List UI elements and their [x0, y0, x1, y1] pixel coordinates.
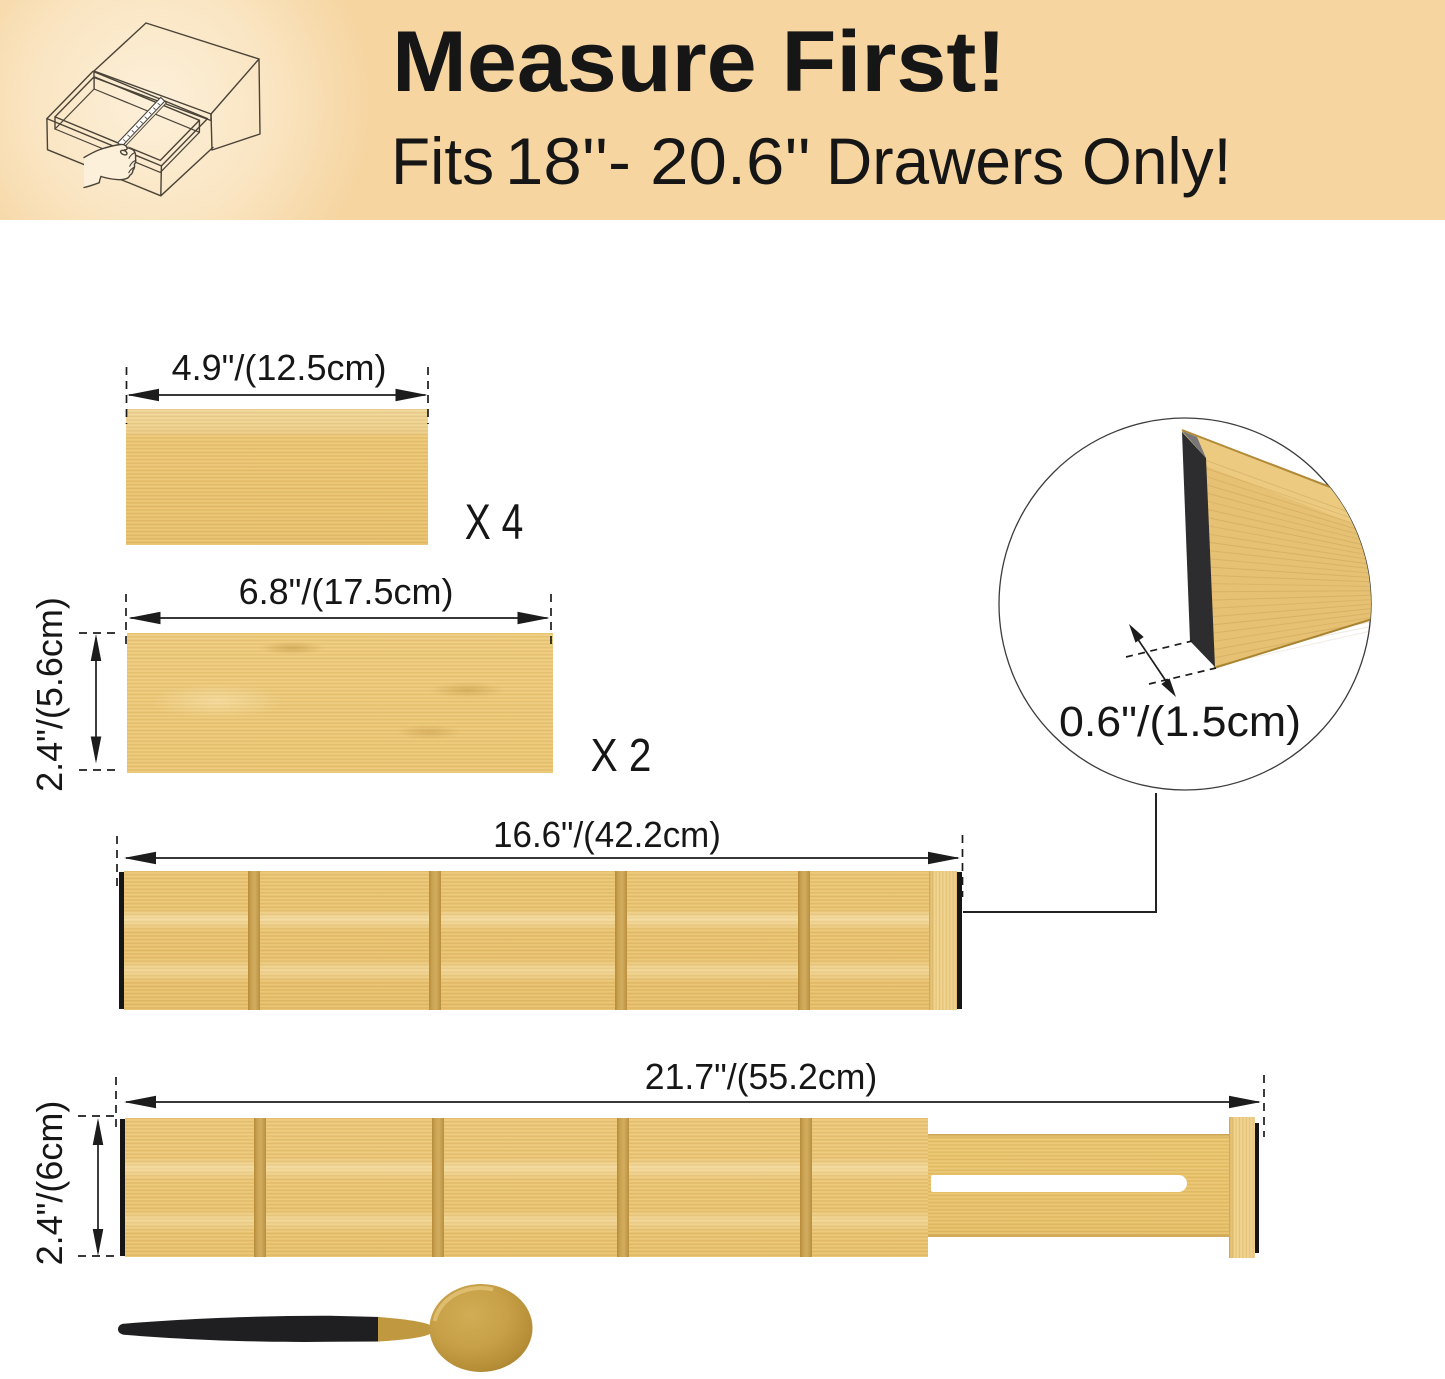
- svg-text:Drawers Only!: Drawers Only!: [826, 124, 1231, 198]
- svg-text:Measure First!: Measure First!: [392, 13, 1006, 110]
- svg-text:Fits: Fits: [391, 124, 494, 198]
- svg-text:2.4"/(6cm): 2.4"/(6cm): [29, 1101, 70, 1266]
- svg-text:4.9"/(12.5cm): 4.9"/(12.5cm): [172, 347, 387, 388]
- svg-text:2.4"/(5.6cm): 2.4"/(5.6cm): [29, 597, 70, 792]
- svg-text:X 2: X 2: [591, 731, 652, 782]
- svg-text:18''- 20.6'': 18''- 20.6'': [505, 125, 811, 198]
- svg-text:16.6"/(42.2cm): 16.6"/(42.2cm): [493, 815, 721, 856]
- svg-text:6.8"/(17.5cm): 6.8"/(17.5cm): [239, 571, 454, 612]
- svg-text:0.6"/(1.5cm): 0.6"/(1.5cm): [1059, 698, 1301, 746]
- svg-text:X 4: X 4: [465, 493, 524, 550]
- svg-text:21.7"/(55.2cm): 21.7"/(55.2cm): [645, 1057, 877, 1097]
